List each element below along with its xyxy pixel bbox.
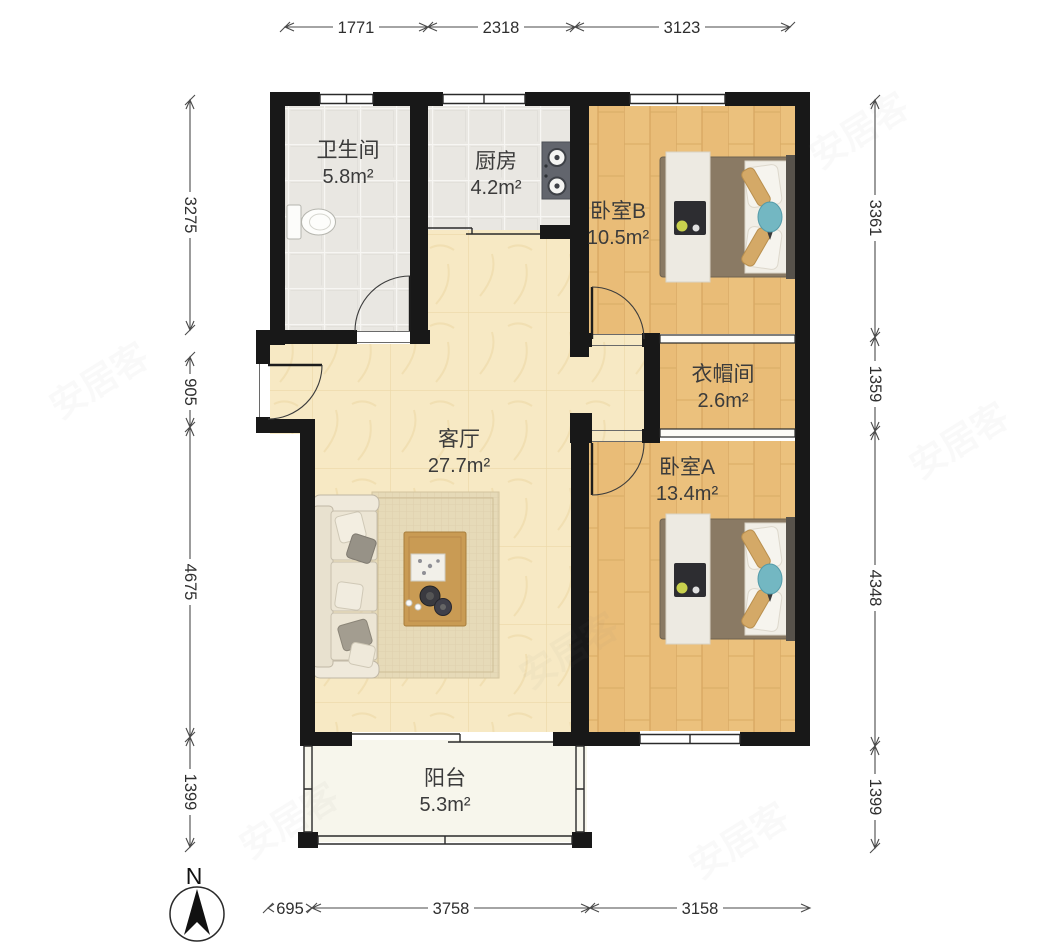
wall-bathroom-bottom-left (256, 330, 357, 344)
sofa-pillow (348, 642, 376, 669)
bed-bedroom-a (660, 514, 795, 644)
dim-value: 1359 (866, 366, 884, 403)
dim-value: 3361 (866, 200, 884, 237)
wall-bathroom-kitchen (410, 106, 428, 332)
floor-plan-page: 卫生间 5.8m² 厨房 4.2m² 卧室B 10.5m² 衣帽间 2.6m² … (0, 0, 1052, 944)
dim-value: 2318 (483, 19, 520, 37)
dim-value: 3275 (181, 197, 199, 234)
living-room-area: 27.7m² (428, 455, 491, 477)
tray-item (693, 225, 700, 232)
bed-headboard (786, 155, 795, 279)
bathroom-area: 5.8m² (322, 166, 373, 188)
kitchen-name: 厨房 (475, 150, 517, 173)
teacup (415, 604, 421, 610)
wall-cloakroom-bottom-stub (642, 429, 660, 443)
floor-plan-canvas: 卫生间 5.8m² 厨房 4.2m² 卧室B 10.5m² 衣帽间 2.6m² … (0, 0, 1052, 944)
wall-living-bedroom-a (571, 443, 589, 732)
corridor-floor (588, 333, 645, 443)
tray-item (693, 587, 700, 594)
watermark-text: 安居客 (43, 335, 156, 427)
dim-value: 3123 (664, 19, 701, 37)
dim-top-1: 1771 (280, 19, 433, 37)
tray-item (677, 583, 688, 594)
dim-value: 1771 (338, 19, 375, 37)
wall-entry-upper (256, 344, 270, 364)
wall-right (795, 92, 810, 746)
balcony-name: 阳台 (424, 767, 466, 790)
watermark-text: 安居客 (903, 395, 1016, 487)
sofa-pillow (334, 581, 363, 610)
dim-bottom-1: 695 (263, 900, 317, 918)
bed-headboard (786, 517, 795, 641)
tray-cup (422, 571, 426, 575)
cloakroom-area: 2.6m² (697, 390, 748, 412)
dimensions-left: 3275 905 4675 1399 (181, 95, 199, 852)
dim-value: 3158 (682, 900, 719, 918)
wall-kitchen-stub (540, 225, 571, 239)
round-pillow (758, 564, 782, 594)
bedroom-a-name: 卧室A (659, 456, 715, 479)
table-tray (411, 554, 445, 581)
dimensions-top: 1771 2318 3123 (280, 19, 795, 37)
dim-value: 695 (276, 900, 304, 918)
wall-left-living (300, 419, 315, 732)
compass-north-label: N (186, 863, 203, 889)
wall-corridor-block (570, 413, 592, 443)
bedroom-a-area: 13.4m² (656, 483, 719, 505)
wall-bedroom-b-bottom-left (570, 333, 592, 347)
dim-bottom-2: 3758 (312, 900, 595, 918)
kitchen-area: 4.2m² (470, 177, 521, 199)
compass: N (170, 863, 224, 941)
dim-left-2: 905 (181, 352, 199, 432)
living-room-name: 客厅 (438, 428, 480, 451)
round-pillow (758, 202, 782, 232)
dim-top-3: 3123 (575, 19, 795, 37)
toilet-tank (287, 205, 301, 239)
dim-value: 3758 (433, 900, 470, 918)
balcony-area: 5.3m² (419, 794, 470, 816)
tray-cup (428, 564, 432, 568)
dim-left-3: 4675 (181, 427, 199, 742)
dimensions-bottom: 695 3758 3158 (263, 900, 810, 918)
living-floor-upper (270, 344, 571, 434)
dim-value: 1399 (866, 779, 884, 816)
dim-bottom-3: 3158 (590, 900, 810, 918)
teapot-lid (440, 604, 446, 610)
wall-bathroom-bottom-right (410, 330, 430, 344)
teacup (406, 600, 412, 606)
balcony-post-right (572, 832, 592, 848)
bedroom-b-area: 10.5m² (587, 227, 650, 249)
window-bathroom-top (320, 92, 373, 106)
cloakroom-floor (660, 341, 795, 431)
dimensions-right: 3361 1359 4348 1399 (866, 95, 884, 853)
sofa-back (313, 506, 333, 667)
cloakroom-name: 衣帽间 (692, 363, 755, 386)
cloakroom-partition-top (660, 335, 795, 343)
wall-bottom-middle (553, 732, 640, 746)
bedroom-b-name: 卧室B (590, 200, 646, 223)
window-kitchen-top (443, 92, 525, 106)
living-furniture (313, 492, 499, 678)
tray-cup (436, 559, 440, 563)
teapot-lid (426, 592, 434, 600)
partition-line (660, 429, 795, 437)
stove-knob (544, 164, 547, 167)
dining-floor (428, 230, 570, 346)
tray-cup (418, 559, 422, 563)
dim-right-2: 1359 (866, 337, 884, 436)
dim-left-1: 3275 (181, 95, 199, 335)
wall-left-bathroom (270, 92, 285, 345)
stove (542, 142, 572, 199)
dim-value: 905 (181, 378, 199, 406)
dim-right-3: 4348 (866, 431, 884, 751)
bathroom-name: 卫生间 (317, 139, 380, 162)
wall-bottom-left (300, 732, 352, 746)
watermark-text: 安居客 (803, 85, 916, 177)
cloakroom-partition-bottom (660, 429, 795, 437)
stove-knob (544, 174, 547, 177)
watermark-text: 安居客 (683, 795, 796, 887)
dim-value: 4348 (866, 570, 884, 607)
tray-item (677, 221, 688, 232)
dim-value: 4675 (181, 564, 199, 601)
dim-left-4: 1399 (181, 737, 199, 852)
wall-cloakroom-left (644, 333, 660, 443)
bed-bedroom-b (660, 152, 795, 282)
dim-top-2: 2318 (428, 19, 580, 37)
window-bedroom-a-bottom (640, 731, 740, 746)
burner-center (554, 155, 559, 160)
dim-tick (263, 903, 273, 913)
dim-value: 1399 (181, 774, 199, 811)
partition-line (660, 335, 795, 343)
balcony-floor (303, 740, 587, 842)
hall-opening-floor (570, 357, 589, 414)
window-bedroom-b-top (630, 92, 725, 106)
burner-center (554, 183, 559, 188)
dim-right-4: 1399 (866, 746, 884, 853)
